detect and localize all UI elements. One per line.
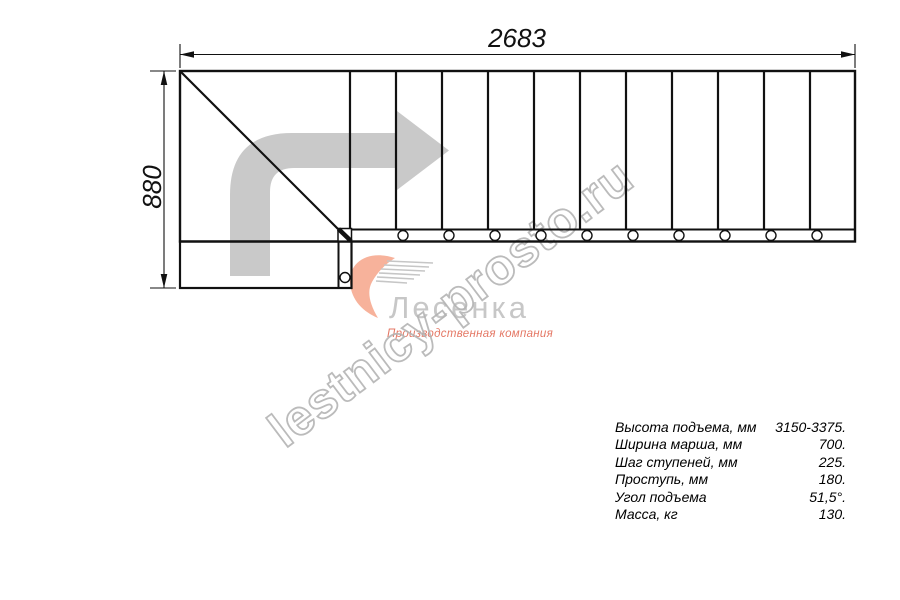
support-circle [444, 231, 454, 241]
spec-row: Масса, кг 130. [615, 506, 846, 523]
spec-value: 700. [819, 436, 846, 453]
support-circle [812, 231, 822, 241]
spec-row: Высота подъема, мм 3150-3375. [615, 419, 846, 436]
dimension-width-label: 2683 [487, 23, 546, 53]
support-circle [340, 273, 350, 283]
spec-value: 3150-3375. [775, 419, 846, 436]
spec-row: Шаг ступеней, мм 225. [615, 454, 846, 471]
dimension-arrow-icon [180, 51, 194, 58]
support-circle [398, 231, 408, 241]
stringer-support-circles [398, 231, 822, 241]
dimension-arrow-icon [161, 274, 168, 288]
spec-value: 180. [819, 471, 846, 488]
spec-label: Проступь, мм [615, 471, 708, 488]
dimension-vertical: 880 [137, 71, 176, 288]
logo-speed-lines [376, 261, 433, 283]
spec-label: Шаг ступеней, мм [615, 454, 738, 471]
support-circle [720, 231, 730, 241]
dimension-arrow-icon [841, 51, 855, 58]
spec-label: Ширина марша, мм [615, 436, 742, 453]
spec-label: Угол подъема [615, 489, 707, 506]
watermark-text: lestnicy-prosto.ru [258, 148, 643, 458]
post-hatch-square [338, 229, 352, 242]
support-circle [490, 231, 500, 241]
support-circle [582, 231, 592, 241]
dimension-horizontal: 2683 [180, 23, 855, 68]
spec-row: Угол подъема 51,5°. [615, 489, 846, 506]
spec-value: 51,5°. [809, 489, 846, 506]
spec-label: Высота подъема, мм [615, 419, 757, 436]
spec-row: Проступь, мм 180. [615, 471, 846, 488]
support-circle [628, 231, 638, 241]
dimension-height-label: 880 [137, 165, 167, 209]
support-circle [536, 231, 546, 241]
support-circle [674, 231, 684, 241]
spec-row: Ширина марша, мм 700. [615, 436, 846, 453]
support-circle [766, 231, 776, 241]
spec-value: 130. [819, 506, 846, 523]
specs-table: Высота подъема, мм 3150-3375. Ширина мар… [615, 419, 846, 523]
stair-drawing-page: Лесенка Производственная компания lestni… [0, 0, 900, 600]
dimension-arrow-icon [161, 71, 168, 85]
spec-label: Масса, кг [615, 506, 678, 523]
spec-value: 225. [819, 454, 846, 471]
